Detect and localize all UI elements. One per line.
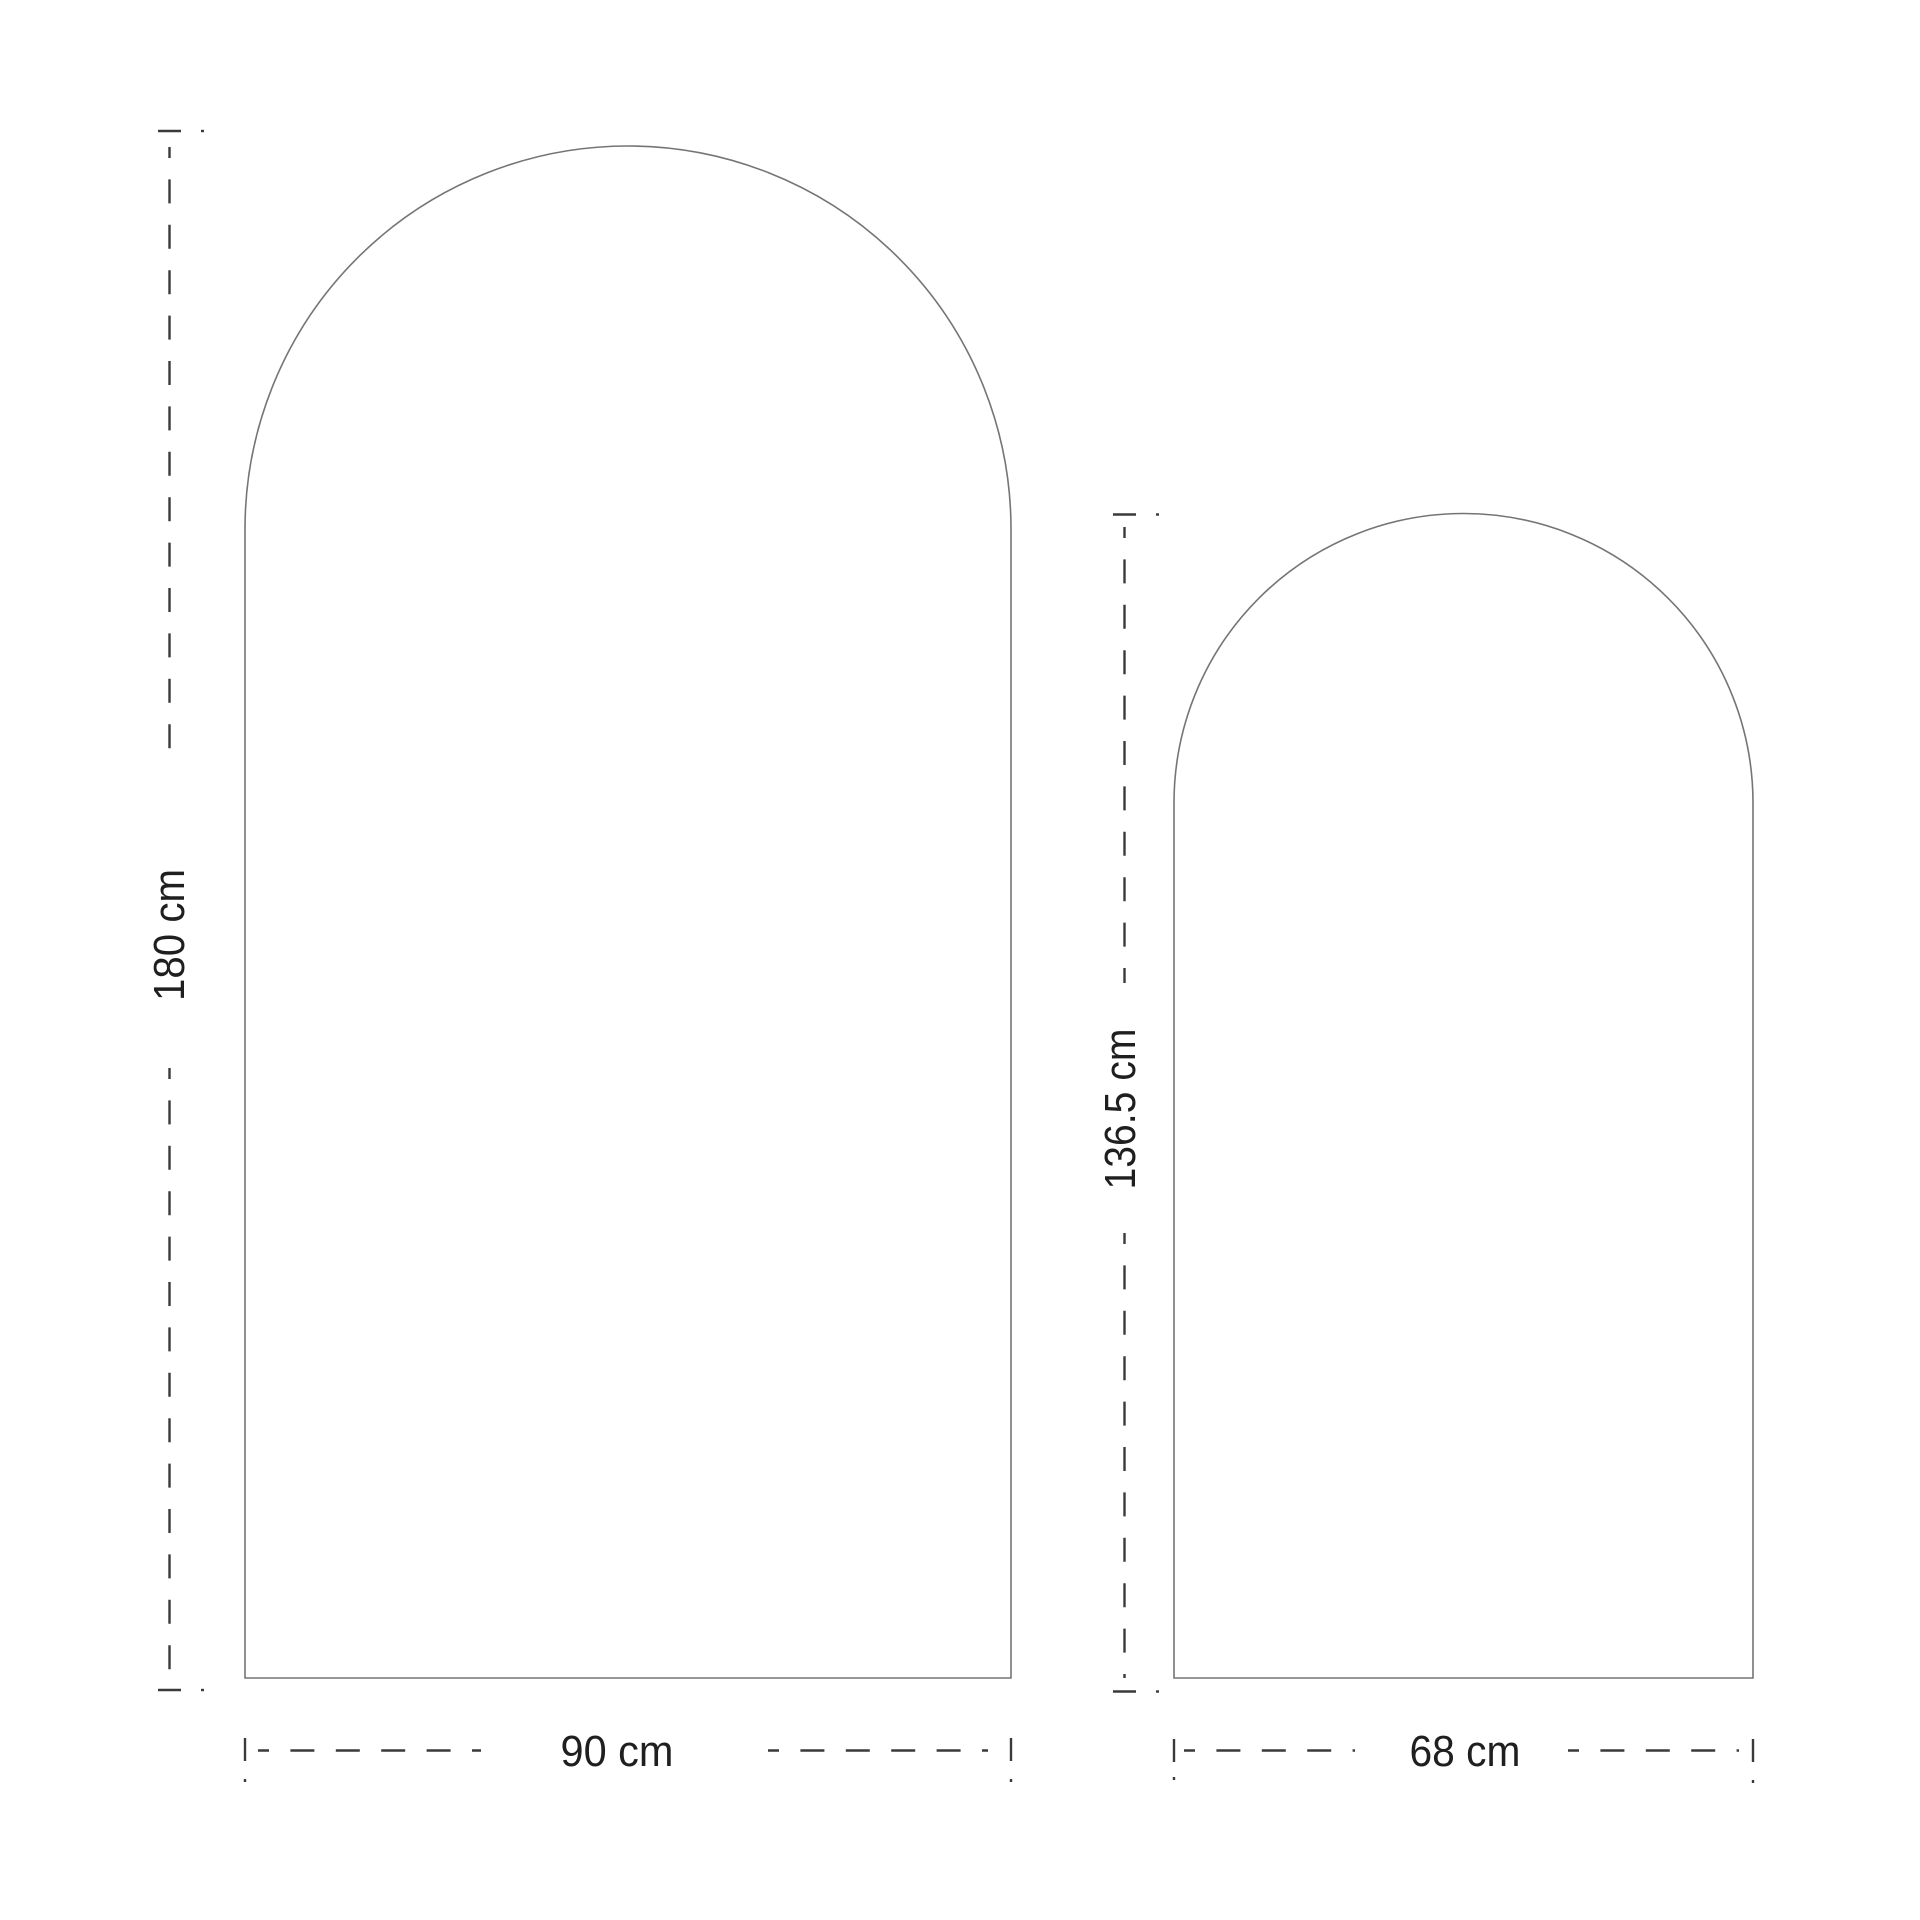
svg-text:180 cm: 180 cm	[145, 869, 194, 1001]
svg-text:68 cm: 68 cm	[1410, 1727, 1521, 1776]
svg-text:136.5 cm: 136.5 cm	[1096, 1029, 1145, 1190]
svg-text:90 cm: 90 cm	[561, 1727, 674, 1776]
